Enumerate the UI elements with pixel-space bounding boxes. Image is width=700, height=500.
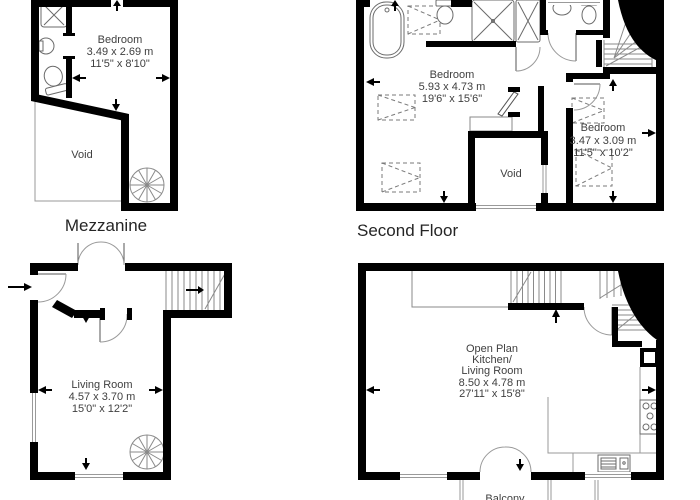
window [548,0,600,5]
room-size-imperial: 11'5" x 8'10" [90,58,150,70]
second-floor-plan: Bedroom 5.93 x 4.73 m 19'6" x 15'6" Bedr… [356,0,664,240]
toilet-icon [40,64,68,96]
first-floor-plan: Living Room 4.57 x 3.70 m 15'0" x 12'2" [8,242,232,480]
ground-floor-plan: Open Plan Kitchen/ Living Room 8.50 x 4.… [358,263,664,500]
window [75,472,123,480]
door-swing [584,307,612,335]
floor-label-second-floor: Second Floor [357,221,458,240]
void-label: Void [71,149,92,161]
room-size-metric: 3.49 x 2.69 m [87,46,154,58]
room-size-metric: 5.93 x 4.73 m [419,81,486,93]
shower-icon [472,0,514,42]
window [541,165,548,193]
door-swing [548,33,576,61]
window [585,472,631,480]
recess-outline [412,271,510,307]
room-size-metric: 4.57 x 3.70 m [69,391,136,403]
mezzanine-plan: Bedroom 3.49 x 2.69 m 11'5" x 8'10" Void… [31,0,178,235]
door-swing [516,47,540,71]
door-swing [574,84,600,110]
room-name-line3: Living Room [461,365,522,377]
curved-stair-wall [618,0,664,62]
room-name: Living Room [71,379,132,391]
wardrobe-icon [382,163,420,192]
entry-door-swing [38,274,66,302]
curved-stair-wall [618,271,664,342]
sink-icon [38,38,54,54]
bathtub-icon [370,2,404,58]
window [400,472,447,480]
wardrobe-icon [378,95,415,120]
room-name: Bedroom [430,69,475,81]
room-size-imperial: 15'0" x 12'2" [72,403,132,415]
balcony-label: Balcony [485,493,525,500]
spiral-staircase-icon [130,435,164,469]
balcony-rails [460,480,598,500]
floor-label-mezzanine: Mezzanine [65,216,147,235]
room-size-imperial: 11'5" x 10'2" [573,147,633,159]
entry-arrow [8,283,32,291]
double-door-swing [78,242,124,265]
window [30,393,38,442]
room-size-imperial: 19'6" x 15'6" [422,93,482,105]
room-name: Bedroom [98,34,143,46]
window [476,203,536,211]
hob-icon [640,400,658,434]
shelf [470,117,512,131]
shower-icon [516,0,540,42]
niche-wall [642,350,657,365]
floorplan-canvas: Bedroom 3.49 x 2.69 m 11'5" x 8'10" Void… [0,0,700,500]
room-name: Bedroom [581,122,626,134]
staircase-icon [511,271,561,303]
kitchen-sink-icon [598,455,630,472]
staircase-icon [166,271,226,310]
wardrobe-icon [572,98,604,123]
spiral-staircase-icon [130,168,164,202]
room-size-imperial: 27'11" x 15'8" [459,388,525,400]
wardrobe-icon [408,6,440,34]
diagonal-wall [52,300,77,318]
room-size-metric: 3.47 x 3.09 m [570,135,637,147]
balcony-double-door-swing [480,447,531,472]
void-label: Void [500,168,521,180]
